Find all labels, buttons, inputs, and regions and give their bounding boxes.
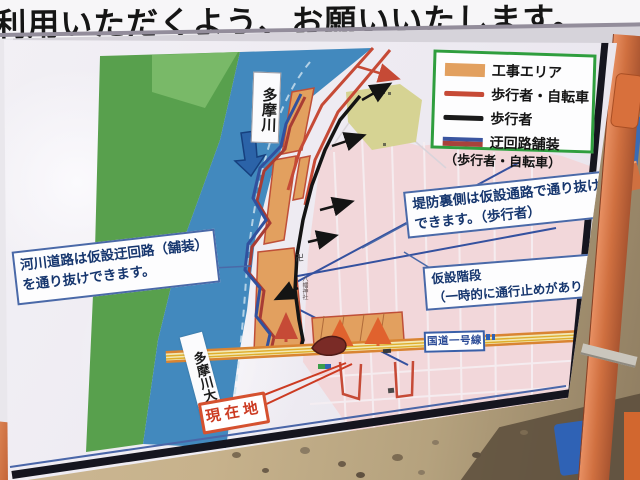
legend-row-ped-bike: 歩行者・自転車 xyxy=(444,83,593,108)
map-panel: 多摩川 多摩川大橋 国道一号線 現在地 卍 八幡神社 工事エリア 歩行者・自転車… xyxy=(0,0,640,480)
orange-clamp xyxy=(610,72,640,129)
stone xyxy=(520,430,528,435)
pedestrian-bicycle-swatch xyxy=(444,90,484,96)
stone xyxy=(356,472,365,478)
stone xyxy=(232,452,241,458)
construction-area-swatch xyxy=(445,62,485,76)
screw xyxy=(400,429,405,434)
orange-post-background xyxy=(624,412,640,480)
river-name-label: 多摩川 xyxy=(251,72,281,144)
stone xyxy=(432,440,439,445)
photo-of-construction-detour-sign: 利用いただくよう、お願いいたします。 xyxy=(0,0,640,480)
stone xyxy=(392,454,403,461)
detour-paving-swatch xyxy=(443,136,483,146)
legend: 工事エリア 歩行者・自転車 歩行者 迂回路舗装 （歩行者・自転車） xyxy=(430,49,596,153)
stone xyxy=(300,447,310,454)
stone xyxy=(262,468,269,473)
route1-name-label: 国道一号線 xyxy=(424,330,486,353)
screw xyxy=(186,459,191,464)
pedestrian-swatch xyxy=(443,114,483,120)
temple-mark: 卍 xyxy=(295,251,305,265)
stone xyxy=(338,461,346,467)
shrine-name-tiny-label: 八幡神社 xyxy=(301,276,307,300)
stone xyxy=(472,452,481,458)
stone xyxy=(418,470,425,475)
legend-row-pedestrian: 歩行者 xyxy=(443,107,592,132)
legend-row-construction: 工事エリア xyxy=(445,59,594,84)
